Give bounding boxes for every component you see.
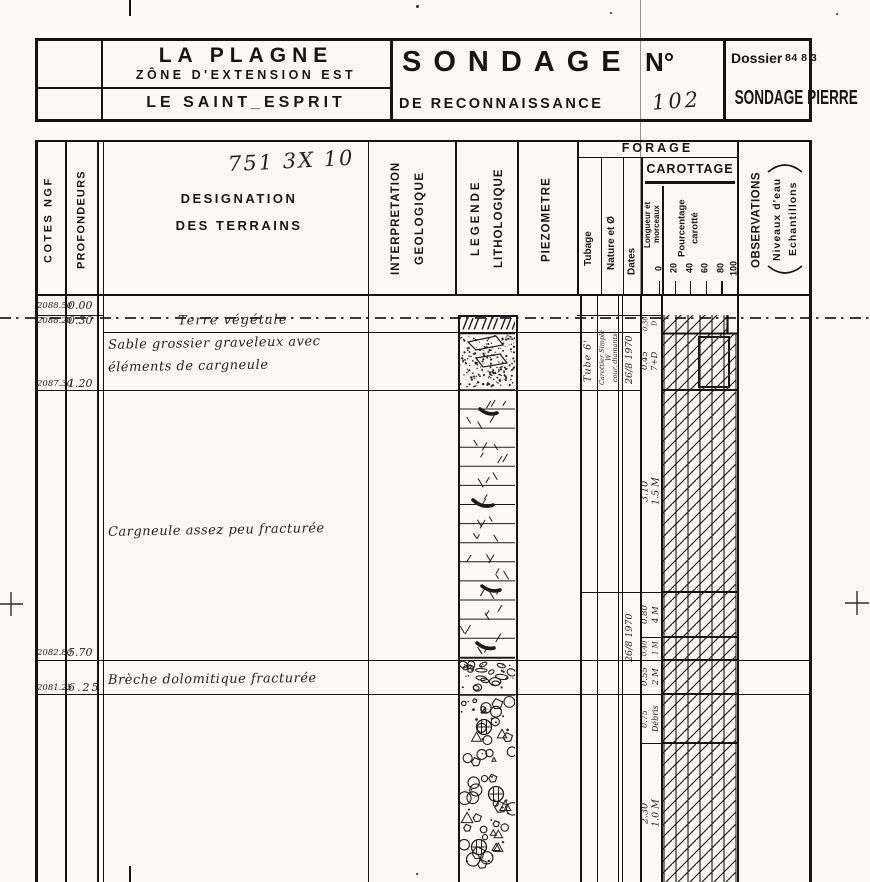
archive-number-handwritten: 751 3X 10 xyxy=(228,148,355,176)
scale-tick-label-20: 20 xyxy=(668,256,680,280)
terrain-description: Cargneule assez peu fracturée xyxy=(108,522,325,539)
col-header-observations-1: Niveaux d'eau xyxy=(770,163,784,275)
breche-dolomitique-pattern xyxy=(458,696,519,868)
rule-line xyxy=(675,281,676,294)
sondage-number-handwritten: 102 xyxy=(651,89,701,113)
rule-line xyxy=(35,38,38,122)
depth-value: 5.70 xyxy=(68,647,93,658)
terrain-description: Brèche dolomitique fracturée xyxy=(108,672,317,687)
run-morceaux: D xyxy=(650,315,659,332)
run-morceaux: Débris xyxy=(651,696,661,742)
run-morceaux: 4 M xyxy=(651,594,661,636)
depth-value: 0.30 xyxy=(68,315,93,326)
col-header-designation-1: DESIGNATION xyxy=(110,192,368,205)
depth-value: 1.20 xyxy=(68,378,93,389)
rule-line xyxy=(517,140,519,296)
rule-line xyxy=(597,296,598,882)
run-morceaux: 1.5 M xyxy=(651,421,661,561)
rule-line xyxy=(35,694,812,695)
col-header-designation-2: DES TERRAINS xyxy=(110,219,368,232)
depth-value: 0.00 xyxy=(68,300,93,311)
sable-pattern xyxy=(458,334,515,387)
col-header-dates: Dates xyxy=(626,233,639,290)
registration-tick-bottom xyxy=(129,866,131,882)
rule-line xyxy=(580,296,582,882)
col-header-forage: FORAGE xyxy=(577,142,738,155)
scale-tick-label-60: 60 xyxy=(699,256,711,280)
run-longueur: 3.10 xyxy=(640,421,650,561)
contractor-stamp: SONDAGE PIERRE xyxy=(735,87,804,108)
rule-line xyxy=(645,181,735,184)
rule-line xyxy=(618,296,619,882)
col-header-interpretation-1: INTERPRETATION xyxy=(389,145,404,291)
fold-dash-line xyxy=(0,317,870,319)
rule-line xyxy=(103,332,640,333)
rule-line xyxy=(721,281,722,294)
rule-line xyxy=(809,140,812,882)
site-name: LA PLAGNE xyxy=(102,45,390,66)
sondage-title: SONDAGE xyxy=(402,48,633,77)
core-recovery-bar xyxy=(662,315,737,882)
run-longueur: 0.30 xyxy=(641,315,650,332)
terrain-description: Sable grossier graveleux avec xyxy=(108,335,321,352)
cote-value: 2082.80 xyxy=(37,649,72,658)
rule-line xyxy=(35,87,391,89)
run-longueur: 0.75 xyxy=(640,696,650,742)
scan-speck xyxy=(836,13,838,15)
col-header-profondeurs: PROFONDEURS xyxy=(74,150,90,290)
rule-line xyxy=(662,186,664,294)
rule-line xyxy=(35,660,812,661)
cargneule-pattern xyxy=(458,400,517,657)
col-header-longueur-2: morceaux xyxy=(652,182,662,267)
col-header-observations-2: Echantillons xyxy=(786,163,800,275)
rule-line xyxy=(35,140,812,142)
registration-tick-top xyxy=(129,0,131,16)
site-sector: LE SAINT_ESPRIT xyxy=(102,95,390,111)
rule-line xyxy=(101,38,103,119)
cote-value: 2088.20 xyxy=(37,317,72,326)
rule-line xyxy=(35,38,812,41)
depth-value: 6.25 xyxy=(68,682,101,693)
terre-vegetale-pattern xyxy=(463,318,517,330)
rule-line xyxy=(35,140,38,882)
col-header-legende-1: LEGENDE xyxy=(469,145,484,291)
rule-line xyxy=(640,743,662,744)
scan-speck xyxy=(416,873,418,875)
run-morceaux: 1 M xyxy=(651,638,661,659)
dossier-label: Dossier xyxy=(731,51,782,65)
run-longueur: 0.45 xyxy=(640,335,650,387)
rule-line xyxy=(706,281,707,294)
run-longueur: 2.30 xyxy=(640,772,650,854)
rule-line xyxy=(622,296,623,882)
recovery-bar-gap xyxy=(698,336,730,388)
col-header-tubage: Tubage xyxy=(582,208,596,290)
rule-line xyxy=(623,158,624,294)
run-longueur: 0.55 xyxy=(640,661,650,693)
sondage-subtitle: DE RECONNAISSANCE xyxy=(399,97,603,112)
run-morceaux: 2 M xyxy=(651,661,661,693)
cote-value: 2087.30 xyxy=(37,380,72,389)
rule-line xyxy=(580,592,662,593)
rule-line xyxy=(103,140,104,882)
rule-line xyxy=(640,296,642,882)
col-header-piezometre: PIEZOMETRE xyxy=(539,150,555,290)
tubage-note: Tube 6' xyxy=(580,322,596,400)
terrain-description: éléments de cargneule xyxy=(108,359,269,375)
rule-line xyxy=(640,637,662,638)
col-header-legende-2: LITHOLOGIQUE xyxy=(492,145,507,291)
rule-line xyxy=(455,140,457,296)
rule-line xyxy=(97,140,99,882)
rule-line xyxy=(577,315,662,316)
lithology-column xyxy=(458,318,519,868)
col-header-cotes-ngf: COTES NGF xyxy=(41,150,57,290)
rule-line xyxy=(458,315,518,317)
graphics-overlay xyxy=(0,0,870,882)
run-longueur: 0.80 xyxy=(640,594,650,636)
col-header-interpretation-2: GEOLOGIQUE xyxy=(413,145,428,291)
sondage-numero-label: N° xyxy=(645,49,674,75)
cote-value: 2081.25 xyxy=(37,684,72,693)
rule-line xyxy=(690,281,691,294)
rule-line xyxy=(516,315,518,882)
col-header-nature: Nature et Ø xyxy=(605,196,619,290)
run-morceaux: 7+D xyxy=(650,335,660,387)
borehole-log-sheet: LA PLAGNE ZÔNE D'EXTENSION EST LE SAINT_… xyxy=(0,0,870,882)
col-header-observations: OBSERVATIONS xyxy=(749,150,765,290)
rule-line xyxy=(390,38,393,122)
rule-line xyxy=(35,294,812,296)
rule-line xyxy=(35,119,812,122)
rule-line xyxy=(601,158,602,294)
rule-line xyxy=(35,390,640,391)
scan-speck xyxy=(416,5,419,8)
rule-line xyxy=(659,281,660,294)
site-zone: ZÔNE D'EXTENSION EST xyxy=(102,69,390,82)
dossier-number: 84 8 3 xyxy=(785,53,817,64)
run-longueur: 0.40 xyxy=(640,638,650,659)
date-note-run2: 26/8 1970 xyxy=(622,597,637,679)
rule-line xyxy=(65,140,67,882)
rule-line xyxy=(661,296,663,882)
breche-band-pattern xyxy=(458,660,516,692)
rule-line xyxy=(641,158,643,294)
scale-tick-label-40: 40 xyxy=(684,256,696,280)
rule-line xyxy=(737,140,739,882)
run-morceaux: 1.0 M xyxy=(651,772,661,854)
rule-line xyxy=(458,315,460,882)
cote-value: 2088.50 xyxy=(37,302,72,311)
rule-line xyxy=(368,140,369,882)
col-header-carottage: CAROTTAGE xyxy=(645,163,735,176)
rule-line xyxy=(577,140,579,296)
scale-tick-label-80: 80 xyxy=(715,256,727,280)
rule-line xyxy=(723,38,726,122)
terrain-description: Terre végétale xyxy=(178,314,288,328)
scan-speck xyxy=(610,12,612,14)
rule-line xyxy=(35,315,103,316)
rule-line xyxy=(809,38,812,122)
